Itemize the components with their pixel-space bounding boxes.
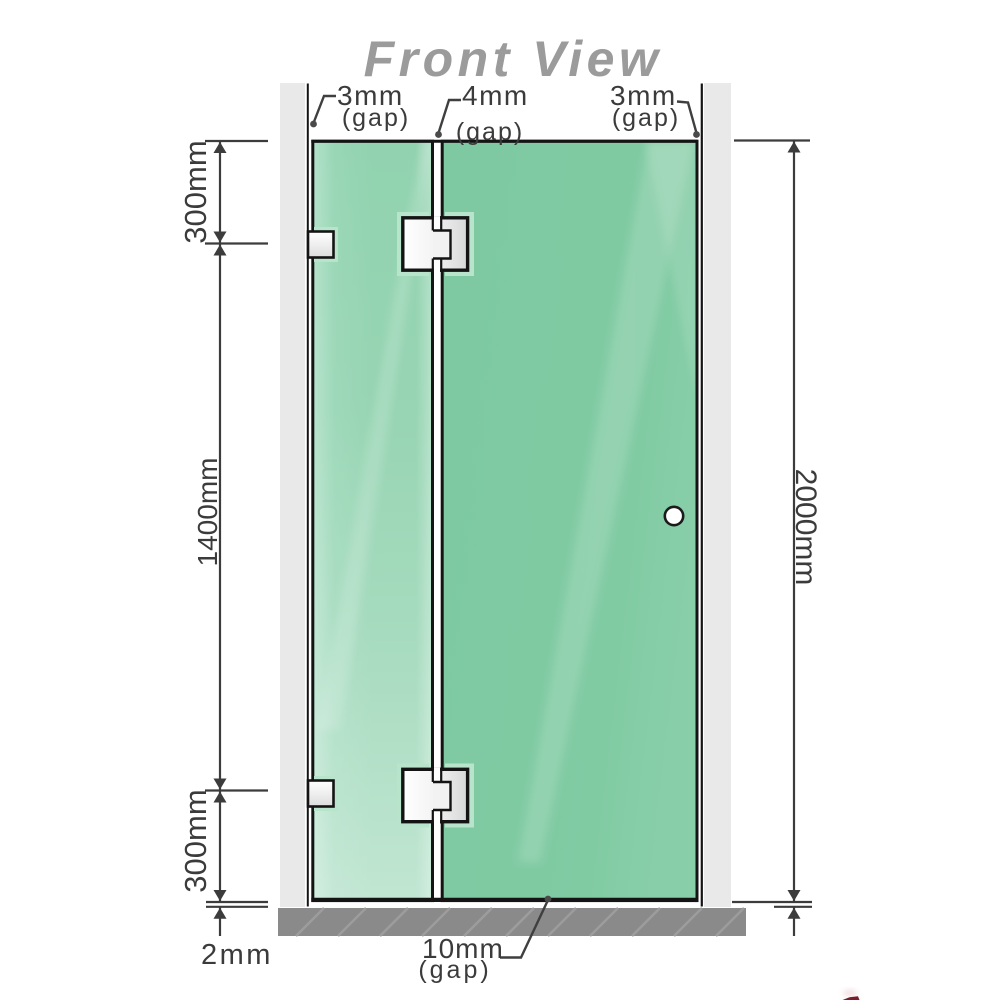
svg-text:2000mm: 2000mm (789, 469, 822, 586)
svg-text:1400mm: 1400mm (192, 458, 223, 567)
svg-text:300mm: 300mm (178, 140, 213, 243)
svg-text:(gap): (gap) (342, 104, 410, 132)
svg-text:(gap): (gap) (456, 118, 524, 146)
svg-text:4mm: 4mm (462, 80, 529, 111)
svg-text:(gap): (gap) (418, 956, 491, 984)
svg-text:(gap): (gap) (612, 104, 680, 132)
svg-text:Front View: Front View (364, 31, 663, 87)
svg-text:2mm: 2mm (201, 939, 273, 971)
svg-text:300mm: 300mm (178, 789, 213, 892)
